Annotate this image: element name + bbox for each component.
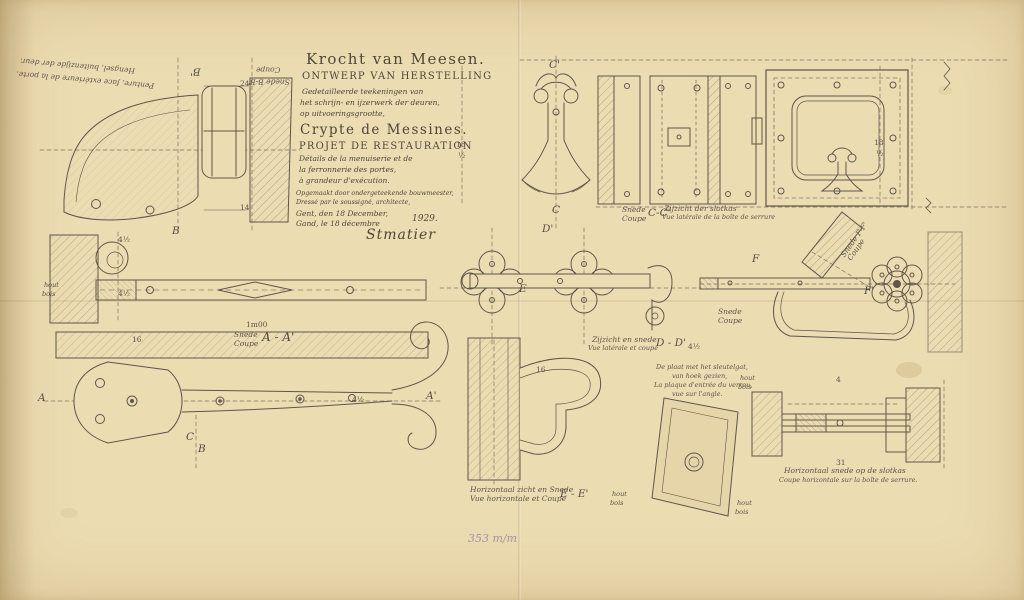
dim-4half-1: 4½: [118, 236, 130, 244]
label-section-aa-fr: Coupe: [234, 340, 258, 348]
pencil-inventory-note: 353 m/m: [468, 532, 517, 545]
mark-c-prime: C': [549, 60, 560, 71]
desc-nl-3: op uitvoeringsgrootte,: [300, 110, 385, 118]
dim-4: 4: [836, 376, 841, 384]
mark-e: E: [519, 284, 527, 295]
rosette-door-handle: [700, 212, 962, 352]
mark-c2: C: [552, 205, 560, 216]
dim-18-left: 18: [456, 141, 466, 149]
desc-fr-3: à grandeur d'exécution.: [299, 177, 390, 185]
dim-14: 14: [240, 204, 250, 212]
label-section-dd: D - D': [656, 338, 686, 349]
drawing-sheet: Krocht van Meesen. ONTWERP VAN HERSTELLI…: [0, 0, 1024, 600]
label-wood-nl-3: hout: [612, 491, 627, 498]
year: 1929.: [412, 215, 438, 224]
label-section-dd-fr: Vue latérale et coupe: [588, 345, 658, 352]
mark-f-prime: F': [864, 286, 874, 297]
label-wood-nl-2: hout: [740, 375, 755, 382]
label-plate-note-4: vue sur l'angle.: [672, 391, 723, 398]
mark-a: A: [38, 393, 46, 404]
label-wood-fr-2: bois: [738, 384, 752, 391]
label-section-ee-nl: Horizontaal zicht en Snede: [470, 486, 573, 494]
dim-16-1: 16: [132, 336, 142, 344]
label-lockbox-side-fr: Vue latérale de la boîte de serrure: [662, 214, 775, 221]
label-section-cc-nl: Snede: [622, 206, 646, 214]
mark-b2: B: [198, 444, 206, 455]
label-section-small-fr: Coupe: [718, 317, 742, 325]
mark-f: F: [752, 254, 759, 265]
lock-box-horizontal-section: [752, 388, 940, 462]
angled-plate-perspective: [652, 398, 738, 516]
dim-18-right: 18: [874, 139, 884, 147]
label-lockbox-hsection-fr: Coupe horizontale sur la boîte de serrur…: [779, 477, 918, 484]
mark-d-prime: D': [542, 224, 553, 235]
subtitle-fr: PROJET DE RESTAURATION: [299, 142, 473, 152]
dim-24: 24: [240, 80, 250, 88]
label-lockbox-hsection-nl: Horizontaal snede op de slotkas: [784, 467, 906, 475]
mark-b: B: [172, 226, 180, 237]
dim-18-left-frac: ½: [458, 152, 465, 160]
rosette: [872, 257, 922, 311]
made-by-nl: Opgemaakt door ondergeteekende bouwmeest…: [296, 191, 454, 197]
lock-plate-front-view: [766, 70, 908, 206]
dim-4half-2: 4½: [118, 290, 130, 298]
label-section-bb: Snede B-B': [248, 78, 290, 86]
mark-c: C: [186, 432, 194, 443]
title-nl: Krocht van Meesen.: [306, 52, 485, 67]
dim-18-right-frac: ½: [876, 150, 883, 158]
label-plate-note-2: van hoek gezien,: [672, 373, 727, 380]
label-wood-fr-4: bois: [735, 509, 749, 516]
dim-31: 31: [836, 459, 846, 467]
label-wood-fr-1: bois: [42, 291, 56, 298]
date-nl: Gent, den 18 December,: [296, 210, 388, 218]
desc-nl-2: het schrijn- en ijzerwerk der deuren,: [300, 99, 440, 107]
dim-4half-4: 4½: [352, 396, 364, 404]
made-by-fr: Dressé par le soussigné, architecte,: [296, 200, 410, 206]
desc-nl-1: Gedetailleerde teekeningen van: [302, 88, 423, 96]
hinge-exterior-view: [64, 78, 292, 222]
label-section-ee-fr: Vue horizontale et Coupe: [470, 495, 566, 503]
hinge-horizontal-section: [50, 235, 426, 323]
label-section-ee: E - E': [560, 489, 588, 500]
handle-side-view: [468, 338, 601, 480]
mark-a-prime: A': [426, 391, 436, 402]
label-lockbox-side-nl: Zijzicht der slotkas: [664, 205, 737, 213]
label-wood-nl-1: hout: [44, 282, 59, 289]
dim-4half-3: 4½: [688, 343, 700, 351]
quatrefoil-latch-assembly: [461, 251, 672, 330]
label-scale: 1m00: [246, 321, 267, 329]
dim-16-2: 16: [536, 366, 546, 374]
subtitle-nl: ONTWERP VAN HERSTELLING: [302, 72, 492, 82]
architect-signature: Stmatier: [366, 228, 436, 242]
label-section-aa: A - A': [262, 331, 294, 343]
desc-fr-1: Détails de la menuiserie et de: [299, 155, 413, 163]
label-section-aa-nl: Snede: [234, 331, 258, 339]
label-wood-fr-3: bois: [610, 500, 624, 507]
mark-b-prime: B': [190, 66, 201, 77]
border-squiggle-marks: [926, 62, 950, 213]
label-section-small-nl: Snede: [718, 308, 742, 316]
label-section-cc-fr: Coupe: [622, 215, 646, 223]
desc-fr-2: la ferronnerie des portes,: [299, 166, 396, 174]
label-plate-note-1: De plaat met het sleutelgat,: [656, 364, 748, 371]
lock-box-side-views: [598, 76, 762, 204]
title-fr: Crypte de Messines.: [300, 124, 468, 138]
label-section-bb-fr: Coupe: [256, 66, 280, 74]
label-wood-nl-4: hout: [737, 500, 752, 507]
label-section-dd-nl: Zijzicht en snede: [592, 336, 657, 344]
